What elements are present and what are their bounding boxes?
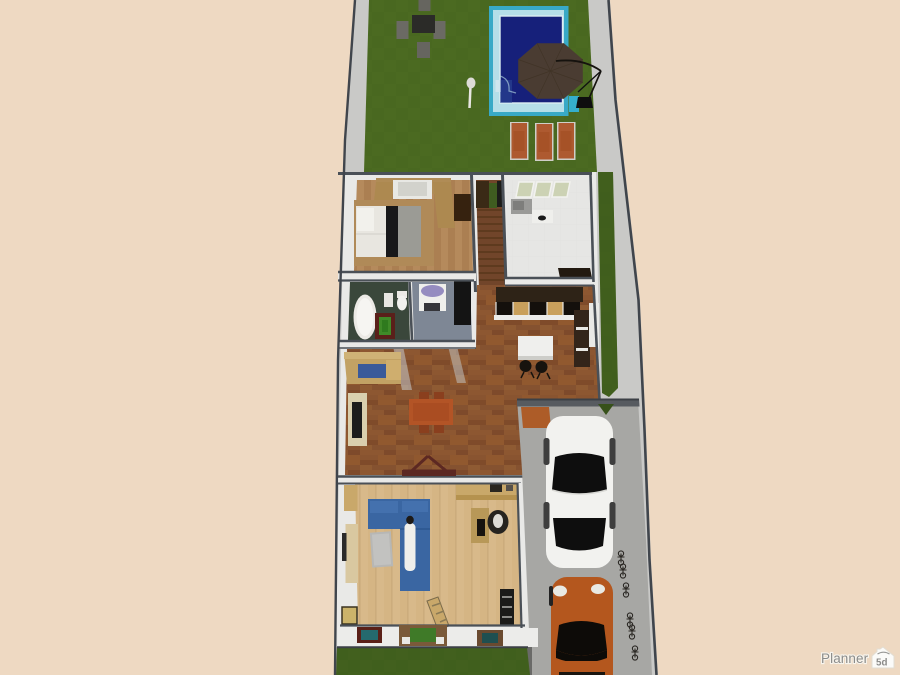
svg-text:5d: 5d [876,658,887,669]
svg-text:Planner: Planner [821,651,869,666]
